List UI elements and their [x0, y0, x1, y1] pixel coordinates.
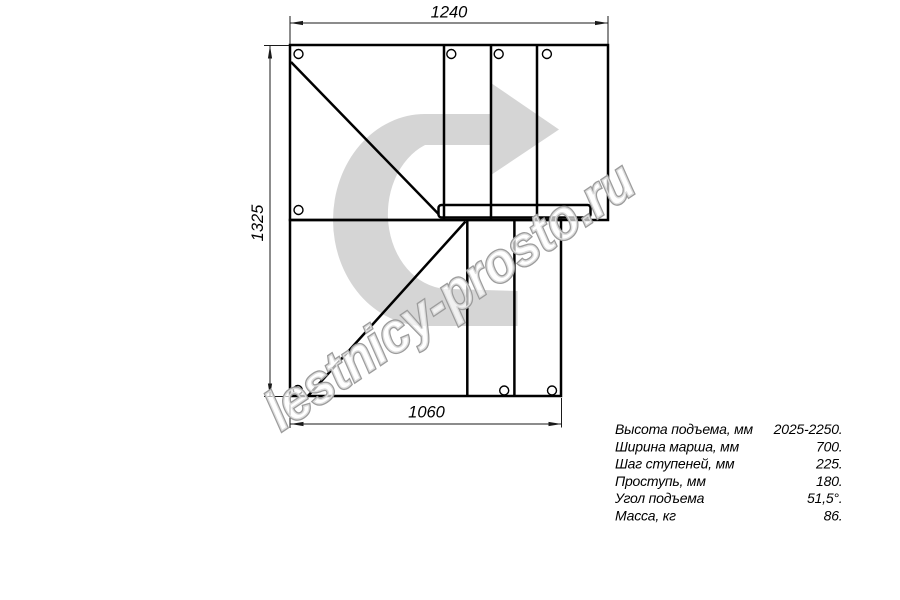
- svg-text:1060: 1060: [408, 404, 446, 422]
- svg-text:180.: 180.: [816, 473, 842, 489]
- svg-text:225.: 225.: [815, 456, 842, 472]
- svg-text:Масса, кг: Масса, кг: [615, 508, 676, 524]
- svg-text:86.: 86.: [824, 508, 843, 524]
- svg-text:1325: 1325: [249, 204, 267, 242]
- svg-text:Шаг ступеней, мм: Шаг ступеней, мм: [615, 456, 735, 472]
- svg-text:Угол подъема: Угол подъема: [614, 490, 705, 506]
- svg-text:Высота подъема, мм: Высота подъема, мм: [615, 421, 754, 437]
- svg-text:1240: 1240: [431, 4, 469, 22]
- svg-text:2025-2250.: 2025-2250.: [773, 421, 843, 437]
- svg-text:700.: 700.: [816, 438, 842, 454]
- svg-text:Ширина марша, мм: Ширина марша, мм: [615, 438, 740, 454]
- svg-text:Проступь, мм: Проступь, мм: [615, 473, 706, 489]
- svg-text:51,5°.: 51,5°.: [807, 490, 843, 506]
